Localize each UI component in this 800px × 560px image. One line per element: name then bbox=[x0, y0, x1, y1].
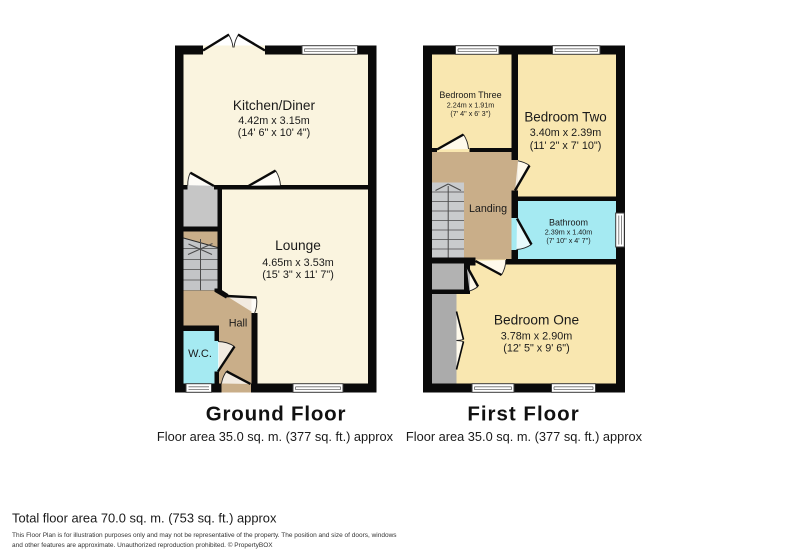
svg-text:(14' 6" x 10' 4"): (14' 6" x 10' 4") bbox=[238, 127, 310, 139]
svg-text:Floor area 35.0 sq. m. (377 sq: Floor area 35.0 sq. m. (377 sq. ft.) app… bbox=[157, 429, 394, 444]
svg-text:and other features are approxi: and other features are approximate. Unau… bbox=[12, 541, 273, 549]
svg-text:Kitchen/Diner: Kitchen/Diner bbox=[233, 98, 316, 113]
svg-text:Bathroom: Bathroom bbox=[549, 218, 588, 228]
svg-text:Bedroom Three: Bedroom Three bbox=[439, 90, 501, 100]
svg-text:Landing: Landing bbox=[469, 203, 507, 215]
svg-text:(7' 10" x 4' 7"): (7' 10" x 4' 7") bbox=[546, 236, 590, 245]
svg-text:Hall: Hall bbox=[229, 318, 248, 330]
svg-text:Lounge: Lounge bbox=[275, 238, 321, 253]
svg-text:(15' 3" x 11' 7"): (15' 3" x 11' 7") bbox=[262, 269, 334, 281]
svg-text:Bedroom One: Bedroom One bbox=[494, 313, 579, 328]
svg-text:4.42m x 3.15m: 4.42m x 3.15m bbox=[238, 115, 309, 127]
svg-text:Total floor area 70.0 sq. m. (: Total floor area 70.0 sq. m. (753 sq. ft… bbox=[12, 511, 277, 526]
svg-text:First Floor: First Floor bbox=[467, 403, 579, 426]
svg-text:3.40m x 2.39m: 3.40m x 2.39m bbox=[530, 127, 601, 139]
svg-text:(12' 5" x 9' 6"): (12' 5" x 9' 6") bbox=[503, 343, 569, 355]
svg-text:W.C.: W.C. bbox=[188, 348, 212, 360]
svg-text:Floor area 35.0 sq. m. (377 sq: Floor area 35.0 sq. m. (377 sq. ft.) app… bbox=[406, 429, 643, 444]
svg-text:(7' 4" x 6' 3"): (7' 4" x 6' 3") bbox=[450, 109, 490, 118]
svg-text:4.65m x 3.53m: 4.65m x 3.53m bbox=[262, 257, 333, 269]
svg-text:Ground Floor: Ground Floor bbox=[206, 403, 347, 426]
svg-text:3.78m x 2.90m: 3.78m x 2.90m bbox=[501, 331, 572, 343]
svg-text:(11' 2" x 7' 10"): (11' 2" x 7' 10") bbox=[530, 140, 602, 152]
svg-text:This Floor Plan is for illustr: This Floor Plan is for illustration purp… bbox=[12, 532, 397, 539]
svg-text:Bedroom Two: Bedroom Two bbox=[524, 110, 606, 125]
